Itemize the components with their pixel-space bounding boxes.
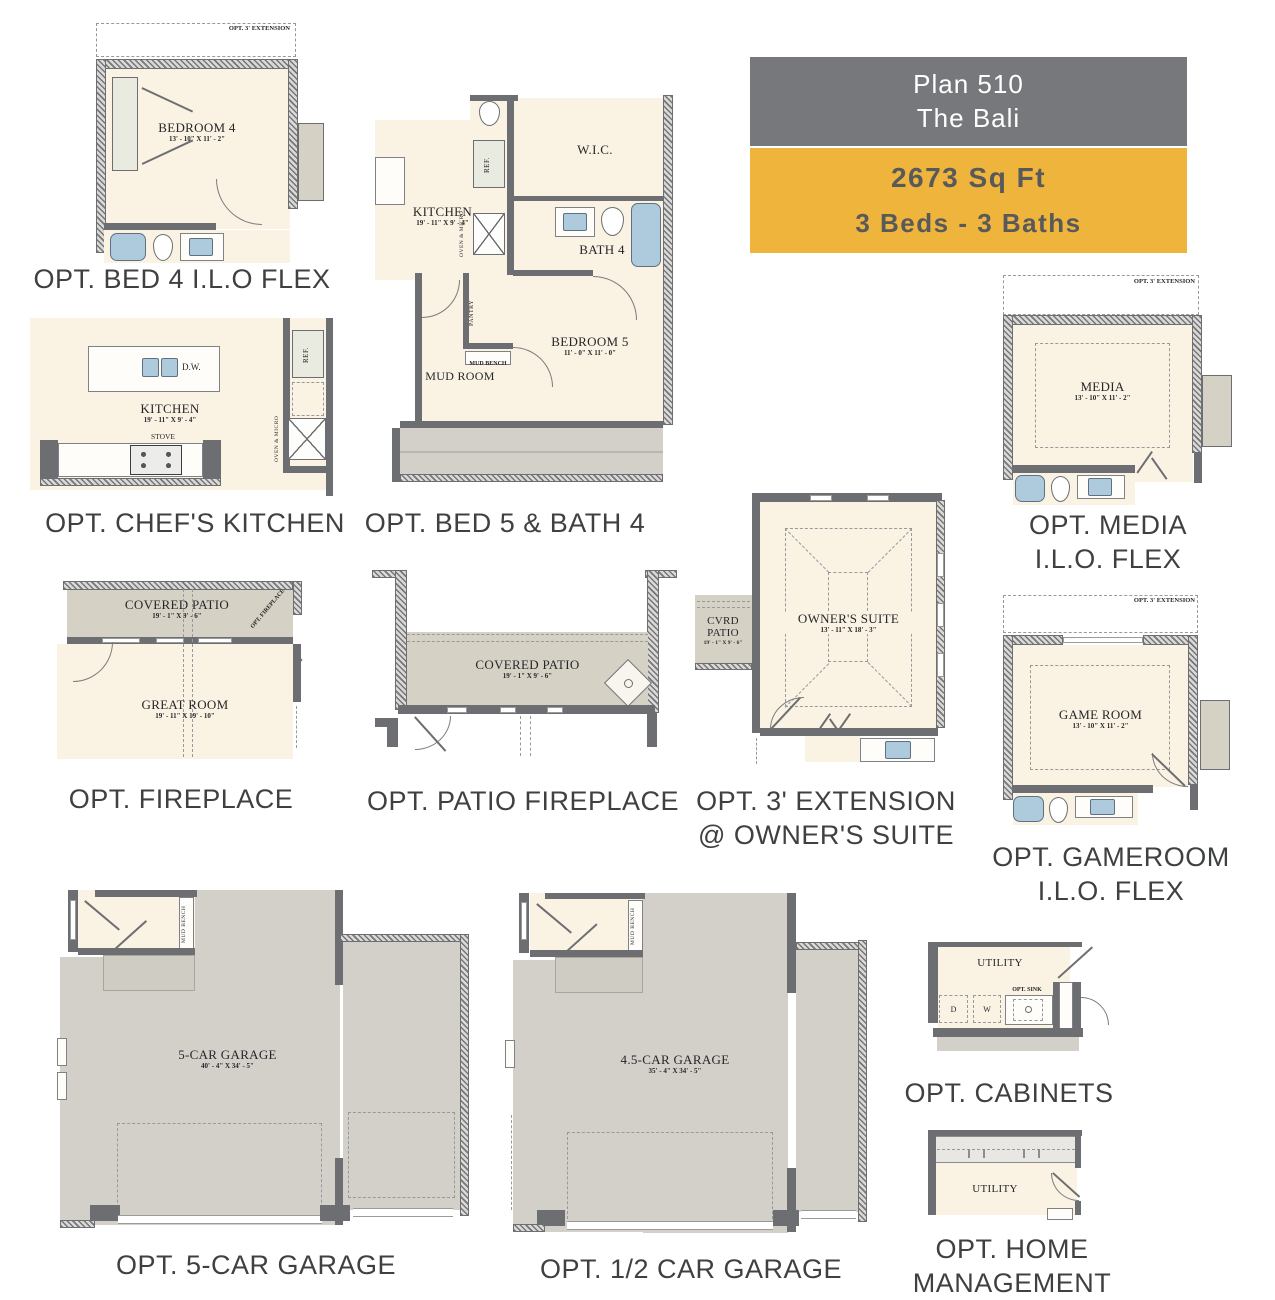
plan-patio-fireplace: COVERED PATIO 19' - 1" X 9' - 6" (365, 570, 680, 785)
caption-owners-suite: OPT. 3' EXTENSION @ OWNER'S SUITE (666, 784, 986, 852)
wall-stub (1190, 785, 1198, 810)
exterior-wall (1003, 315, 1199, 325)
plan-beds-baths: 3 Beds - 3 Baths (750, 208, 1187, 239)
plan-bed4: OPT. 3' EXTENSION BEDROOM 4 13' - 10" X … (60, 15, 322, 265)
wic-label: W.I.C. (540, 143, 650, 158)
wall-stub (1075, 1201, 1081, 1215)
room-name: COVERED PATIO (112, 598, 242, 613)
bath-strip (805, 736, 860, 762)
exterior-wall (1188, 635, 1198, 785)
interior-wall (415, 273, 422, 423)
room-dims: 13' - 10" X 11' - 2" (106, 136, 288, 144)
wall-stub (392, 428, 400, 482)
room-dims: 40' - 4" X 34' - 5" (165, 1063, 290, 1071)
sink-basin-icon (563, 213, 587, 231)
washer-box: W (973, 995, 1001, 1023)
dishwasher-label: D.W. (182, 362, 216, 372)
room-dims: 19' - 1" X 9' - 6" (112, 613, 242, 621)
room-label: UTILITY (960, 1183, 1030, 1195)
interior-wall (928, 1130, 1082, 1136)
wall-stub (320, 1205, 350, 1221)
sink-drain (1025, 1006, 1032, 1013)
tub-icon (110, 233, 146, 261)
interior-wall (928, 1130, 936, 1215)
patio-dashed-edge (697, 607, 750, 608)
room-name: BATH 4 (547, 243, 657, 258)
plan-number: Plan 510 (750, 69, 1187, 100)
window (57, 1038, 67, 1066)
garage-door-dashed (117, 1123, 322, 1218)
exterior-wall (460, 934, 469, 1216)
caption-line: OPT. HOME (852, 1232, 1172, 1266)
dryer-label: D (951, 1005, 957, 1014)
caption-bed5-bath4: OPT. BED 5 & BATH 4 (345, 506, 665, 540)
window (937, 553, 944, 577)
ceiling-line (530, 716, 531, 756)
cooktop-icon (130, 445, 182, 475)
plan-half-car-garage: MUD BENCH 4.5-CAR GARAGE 35' - 4" X 34' … (505, 890, 920, 1242)
room-name: W.I.C. (540, 143, 650, 158)
interior-wall (928, 942, 1082, 947)
window (447, 707, 467, 713)
window (937, 603, 944, 627)
floor-vent (1047, 1208, 1073, 1220)
room-label: MEDIA 13' - 10" X 11' - 2" (1055, 380, 1150, 402)
interior-wall (1194, 453, 1202, 483)
interior-wall (545, 893, 645, 899)
caption-media: OPT. MEDIA I.L.O. FLEX (948, 508, 1268, 576)
exterior-wall (647, 570, 659, 713)
wall-stub (90, 1205, 120, 1221)
plan-sqft: 2673 Sq Ft (750, 162, 1187, 194)
wall-stub (1075, 1136, 1081, 1168)
extension-label: OPT. 3' EXTENSION (1095, 278, 1195, 285)
room-dims: 19' - 1" X 9' - 6" (697, 640, 749, 646)
interior-wall (95, 890, 197, 897)
room-name: 4.5-CAR GARAGE (610, 1053, 740, 1068)
room-label: BEDROOM 4 13' - 10" X 11' - 2" (106, 121, 288, 143)
exterior-wall (40, 478, 221, 486)
room-dims: 35' - 4" X 34' - 5" (610, 1068, 740, 1076)
room-label: 5-CAR GARAGE 40' - 4" X 34' - 5" (165, 1048, 290, 1070)
room-name: CVRD PATIO (697, 615, 749, 640)
room-name: UTILITY (960, 957, 1040, 969)
mudroom-label: MUD ROOM (425, 370, 495, 383)
patio-dashed-edge (407, 634, 648, 635)
sink-basin-icon (161, 358, 178, 377)
caption-gameroom: OPT. GAMEROOM I.L.O. FLEX (951, 840, 1271, 908)
window (937, 653, 944, 677)
plan-stats-banner: 2673 Sq Ft 3 Beds - 3 Baths (750, 148, 1187, 253)
window-wall (752, 493, 942, 502)
fridge-label: REF. (302, 338, 314, 372)
wall-stub (375, 718, 398, 727)
interior-wall (787, 893, 796, 993)
wall-stub (283, 466, 333, 473)
interior-wall (507, 95, 514, 275)
adjacent-closet (1202, 375, 1232, 447)
window (500, 707, 516, 713)
exterior-wall (293, 581, 302, 615)
bedroom-label: BEDROOM 5 11' - 0" X 11' - 0" (525, 335, 655, 357)
plan-5-car-garage: MUD BENCH 5-CAR GARAGE 40' - 4" X 34' - … (55, 890, 505, 1235)
caption-fireplace: OPT. FIREPLACE (21, 782, 341, 816)
interior-wall (293, 644, 301, 702)
sink-basin-icon (1090, 799, 1115, 815)
plan-cabinets: UTILITY D W OPT. SINK (925, 935, 1140, 1060)
exterior-wall (1192, 315, 1202, 453)
extension-label: OPT. 3' EXTENSION (180, 25, 290, 32)
oven-micro (288, 418, 326, 460)
room-name: MUD ROOM (425, 370, 495, 383)
patio-label: COVERED PATIO 19' - 1" X 9' - 6" (112, 598, 242, 620)
window (1063, 637, 1143, 643)
interior-wall (513, 270, 593, 276)
counter (375, 157, 405, 205)
room-label: UTILITY (960, 957, 1040, 969)
sink-basin-icon (1088, 478, 1112, 496)
exterior-wall (663, 95, 673, 425)
garage-door-dashed (567, 1132, 773, 1224)
garage-door-dashed (348, 1112, 455, 1198)
room-dims: 19' - 11" X 9' - 4" (105, 417, 235, 425)
wall-stub (773, 1210, 799, 1226)
room-name: UTILITY (960, 1183, 1030, 1195)
window (156, 638, 184, 643)
room-name: GAME ROOM (1048, 708, 1153, 723)
garage-line (400, 451, 663, 453)
mudroom-fill (78, 890, 195, 952)
room-name: BEDROOM 4 (106, 121, 288, 136)
room-name: OWNER'S SUITE (785, 612, 912, 627)
exterior-wall (1003, 315, 1013, 480)
plan-title-banner: Plan 510 The Bali (750, 57, 1187, 146)
opt-sink-label: OPT. SINK (1005, 987, 1049, 993)
interior-wall (513, 196, 663, 201)
exterior-wall (288, 59, 298, 209)
exterior-wall (1003, 635, 1013, 800)
counter-tick (1023, 1149, 1025, 1158)
counter-tick (983, 1149, 985, 1158)
garage-door-opening (118, 1215, 322, 1224)
pantry-label: PANTRY (469, 285, 482, 340)
caption-half-car-garage: OPT. 1/2 CAR GARAGE (531, 1252, 851, 1286)
room-dims: 13' - 10" X 11' - 2" (1048, 723, 1153, 731)
fridge-label: REF. (483, 148, 495, 182)
sink-basin-icon (142, 358, 159, 377)
caption-line: OPT. GAMEROOM (951, 840, 1271, 874)
interior-wall (104, 223, 216, 230)
room-dims: 19' - 11" X 9' - 4" (385, 220, 500, 228)
exterior-wall (340, 934, 467, 942)
patio-dashed-edge (407, 641, 648, 642)
ceiling-line (192, 589, 193, 757)
room-dims: 11' - 0" X 11' - 0" (525, 350, 655, 358)
exterior-wall (96, 59, 298, 69)
dryer-box: D (939, 995, 968, 1023)
mud-bench-label: MUD BENCH (181, 900, 192, 948)
extension-label: OPT. 3' EXTENSION (1095, 597, 1195, 604)
interior-wall (1073, 982, 1081, 1030)
room-label: KITCHEN 19' - 11" X 9' - 4" (105, 402, 235, 424)
caption-line: @ OWNER'S SUITE (666, 818, 986, 852)
ceiling-line (520, 716, 521, 756)
exterior-wall (400, 474, 663, 482)
wall-stub (203, 440, 221, 480)
wall-stub (647, 713, 657, 747)
window-dashed (296, 706, 297, 748)
cased-opening (1059, 982, 1073, 1030)
caption-bed4: OPT. BED 4 I.L.O FLEX (22, 262, 342, 296)
caption-patio-fireplace: OPT. PATIO FIREPLACE (363, 784, 683, 818)
interior-wall (78, 948, 195, 955)
plan-chefs-kitchen: D.W. KITCHEN 19' - 11" X 9' - 4" STOVE R… (30, 318, 370, 508)
room-dims: 19' - 11" X 19' - 10" (125, 713, 245, 721)
garage-door-opening (567, 1221, 773, 1230)
interior-wall (933, 1028, 1083, 1037)
window (867, 495, 889, 501)
tub-icon (1013, 796, 1044, 822)
tub-icon (1015, 475, 1045, 502)
plan-fireplace: COVERED PATIO 19' - 1" X 9' - 6" OPT. FI… (40, 580, 340, 780)
caption-cabinets: OPT. CABINETS (849, 1076, 1169, 1110)
kitchen-label: KITCHEN 19' - 11" X 9' - 4" (385, 205, 500, 227)
mud-bench-label: MUD BENCH (630, 903, 641, 949)
window (810, 495, 832, 501)
bath-label: BATH 4 (547, 243, 657, 258)
window (57, 1072, 67, 1100)
counter-tick (968, 1149, 970, 1158)
room-label: 4.5-CAR GARAGE 35' - 4" X 34' - 5" (610, 1053, 740, 1075)
stove-label: STOVE (133, 432, 193, 441)
room-name: 5-CAR GARAGE (165, 1048, 290, 1063)
window-wall (398, 705, 655, 714)
interior-wall (1013, 465, 1135, 473)
garage-door-opening (353, 1208, 453, 1217)
mud-bench: MUD BENCH (465, 351, 511, 365)
room-dims: 19' - 1" X 9' - 6" (460, 673, 595, 681)
room-dims: 13' - 10" X 11' - 2" (1055, 395, 1150, 403)
plan-name: The Bali (750, 103, 1187, 134)
patio-label: COVERED PATIO 19' - 1" X 9' - 6" (460, 658, 595, 680)
interior-wall (760, 728, 938, 736)
window (70, 900, 76, 940)
dashed-stub (756, 738, 757, 764)
washer-label: W (983, 1005, 991, 1014)
patio-dashed-edge (697, 601, 750, 602)
exterior-wall (513, 1224, 545, 1232)
garage-step (555, 957, 643, 993)
ceiling-line (183, 589, 184, 757)
garage-wall (400, 421, 663, 428)
exterior-wall (796, 942, 862, 950)
room-name: BEDROOM 5 (525, 335, 655, 350)
garage-step (103, 955, 195, 991)
window (547, 707, 563, 713)
caption-line: OPT. MEDIA (948, 508, 1268, 542)
counter-tick (1038, 1149, 1040, 1158)
sink-basin-icon (885, 741, 911, 759)
wall-stub (40, 440, 58, 480)
mudroom-fill (530, 893, 643, 955)
exterior-wall (63, 581, 293, 590)
plan-home-management: UTILITY (925, 1125, 1140, 1230)
interior-wall (1013, 785, 1153, 793)
oven-micro-label: OVEN & MICRO (274, 414, 286, 464)
interior-wall (463, 343, 513, 349)
exterior-wall (695, 663, 752, 670)
caption-line: I.L.O. FLEX (951, 874, 1271, 908)
cvrd-patio-label: CVRD PATIO 19' - 1" X 9' - 6" (697, 615, 749, 646)
adjacent-closet (298, 123, 324, 201)
wall-stub (387, 727, 398, 747)
plan-gameroom: OPT. 3' EXTENSION GAME ROOM 13' - 10" X … (1000, 595, 1250, 835)
room-label: OWNER'S SUITE 13' - 11" X 18' - 3" (785, 612, 912, 634)
great-room-label: GREAT ROOM 19' - 11" X 19' - 10" (125, 698, 245, 720)
cabinet-dashed (292, 382, 324, 416)
room-name: KITCHEN (105, 402, 235, 417)
adjacent-closet (1200, 700, 1230, 770)
caption-chefs-kitchen: OPT. CHEF'S KITCHEN (35, 506, 355, 540)
mud-bench-label: MUD BENCH (469, 361, 506, 367)
garage-door-dashed (511, 1115, 512, 1210)
exterior-wall (395, 570, 407, 710)
window (198, 638, 232, 643)
floor-plan-sheet: { "colors": { "header_gray": "#77787b", … (0, 0, 1275, 1295)
upper-cabinet-dashed (937, 1149, 1075, 1150)
interior-wall (752, 493, 760, 733)
garage-door-opening (801, 1210, 856, 1219)
window (521, 902, 527, 940)
porch-fill (937, 1037, 1079, 1051)
door-arc (1081, 997, 1109, 1025)
room-name: COVERED PATIO (460, 658, 595, 673)
interior-wall (928, 942, 938, 1023)
caption-5-car-garage: OPT. 5-CAR GARAGE (96, 1248, 416, 1282)
room-name: MEDIA (1055, 380, 1150, 395)
fireplace-circle (624, 679, 633, 688)
caption-line: I.L.O. FLEX (948, 542, 1268, 576)
caption-home-management: OPT. HOME MANAGEMENT (852, 1232, 1172, 1300)
interior-wall (530, 950, 643, 957)
exterior-wall (60, 1220, 95, 1228)
room-name: GREAT ROOM (125, 698, 245, 713)
plan-owners-suite: OWNER'S SUITE 13' - 11" X 18' - 3" CVRD … (690, 485, 952, 780)
plan-bed5-bath4: REF. OVEN & MICRO KITCHEN 19' - 11" X 9'… (375, 95, 673, 487)
window (505, 1040, 515, 1068)
room-label: GAME ROOM 13' - 10" X 11' - 2" (1048, 708, 1153, 730)
room-dims: 13' - 11" X 18' - 3" (785, 627, 912, 635)
room-name: KITCHEN (385, 205, 500, 220)
shower-basin (189, 238, 213, 256)
caption-line: OPT. 3' EXTENSION (666, 784, 986, 818)
